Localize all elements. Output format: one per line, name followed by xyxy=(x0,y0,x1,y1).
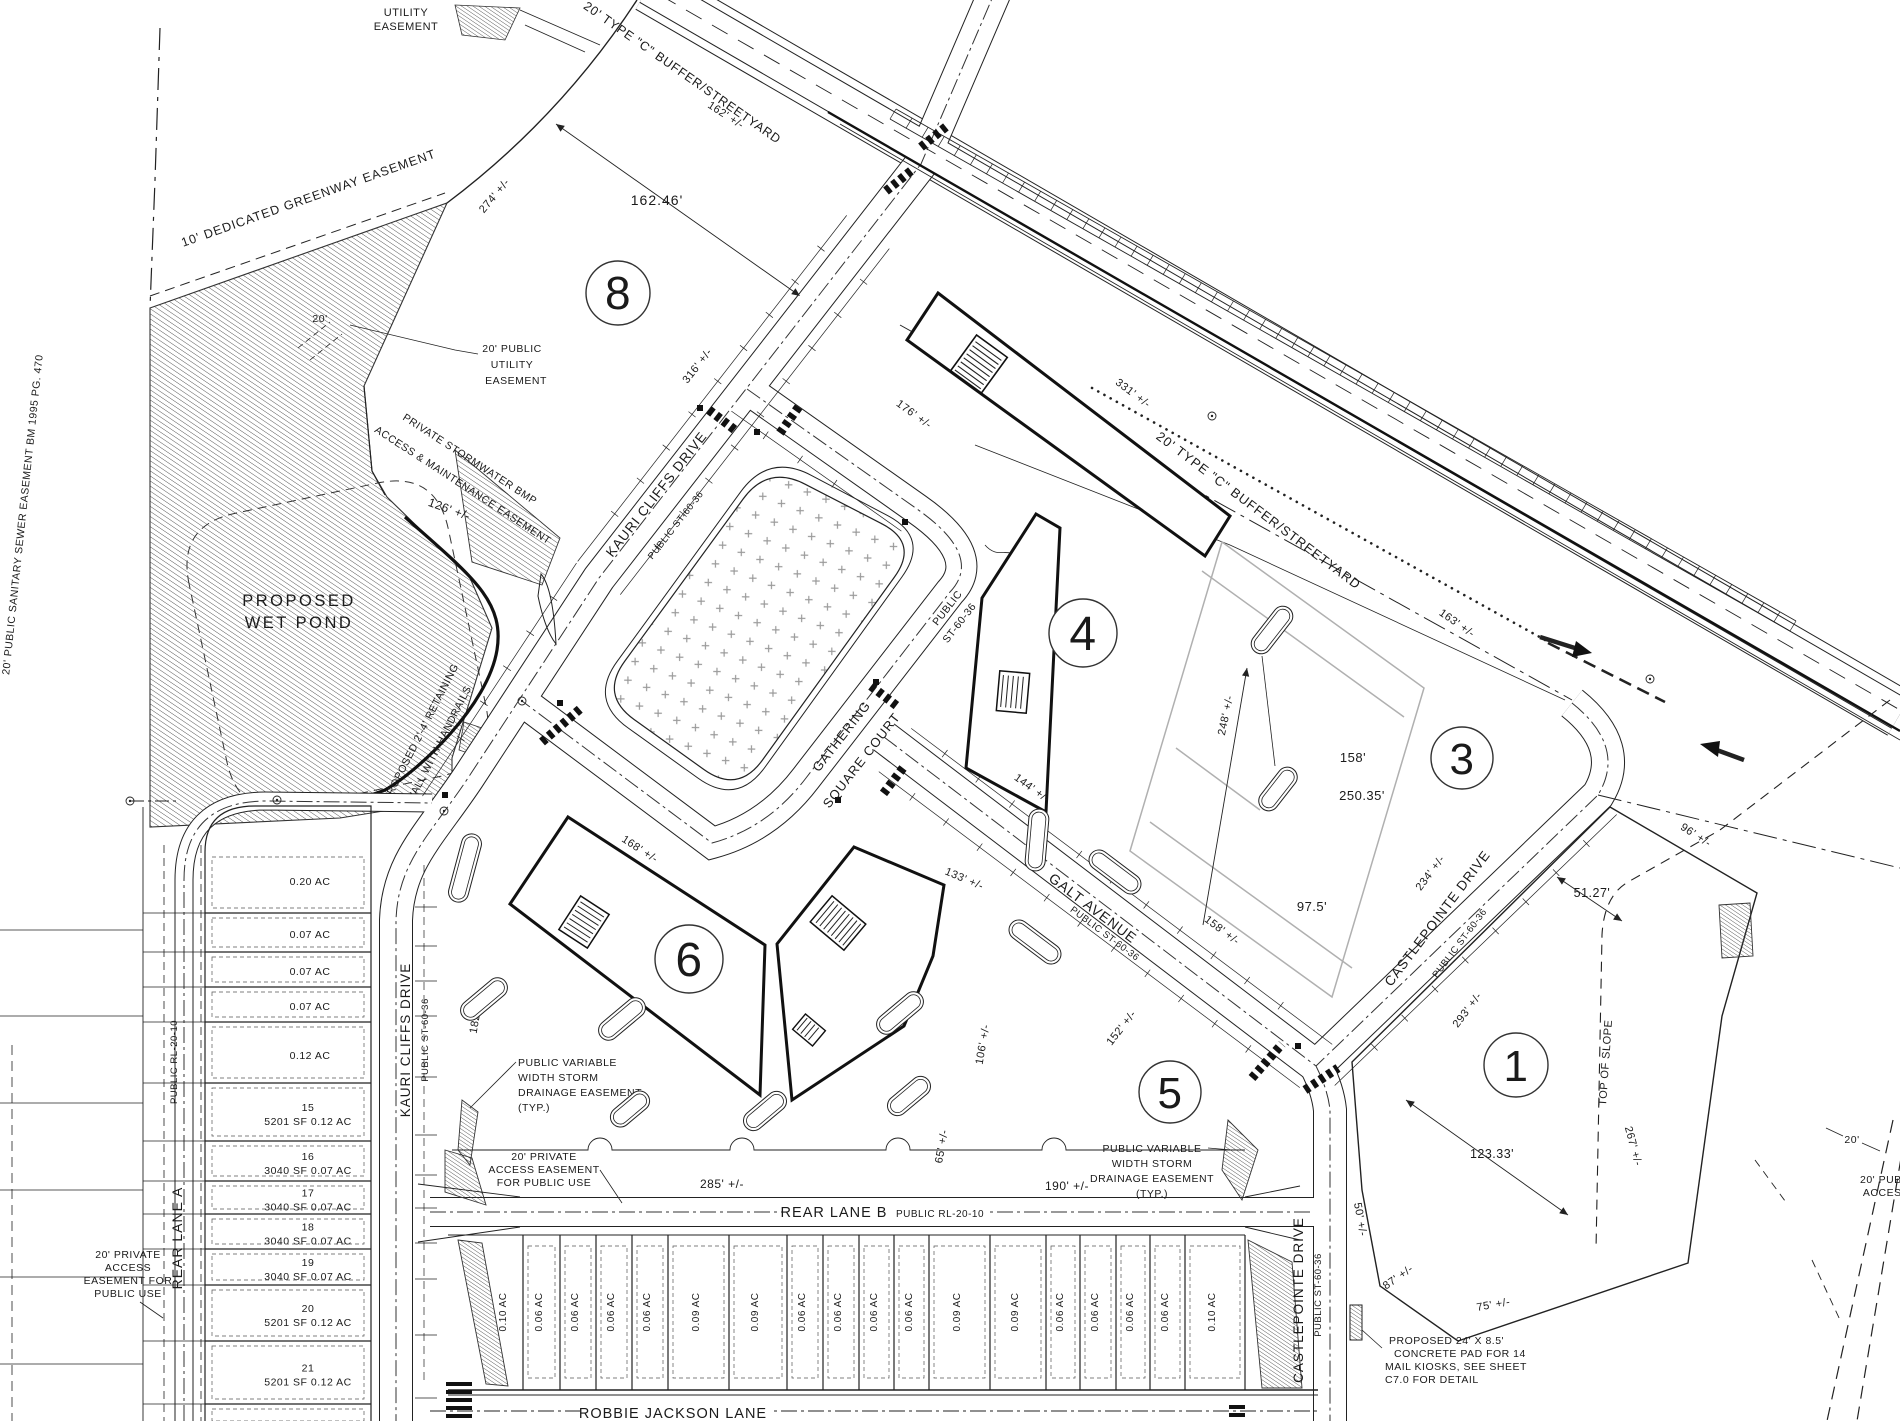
svg-text:3040 SF 0.07 AC: 3040 SF 0.07 AC xyxy=(264,1236,351,1248)
svg-text:158': 158' xyxy=(1340,750,1366,765)
svg-text:15: 15 xyxy=(302,1102,315,1114)
svg-text:PUBLIC RL-20-10: PUBLIC RL-20-10 xyxy=(896,1209,984,1220)
svg-text:285' +/-: 285' +/- xyxy=(700,1177,744,1191)
svg-text:20' PRIVATE: 20' PRIVATE xyxy=(95,1249,160,1261)
svg-text:0.06 AC: 0.06 AC xyxy=(642,1292,653,1331)
svg-text:0.06 AC: 0.06 AC xyxy=(797,1292,808,1331)
svg-text:PUBLIC VARIABLE: PUBLIC VARIABLE xyxy=(1103,1143,1202,1155)
svg-text:97.5': 97.5' xyxy=(1297,899,1327,914)
svg-text:ACCESS: ACCESS xyxy=(105,1262,151,1274)
svg-text:0.09 AC: 0.09 AC xyxy=(952,1292,963,1331)
svg-text:123.33': 123.33' xyxy=(1470,1147,1514,1161)
svg-text:3: 3 xyxy=(1450,735,1475,784)
svg-text:PUBLIC ST-60-36: PUBLIC ST-60-36 xyxy=(1313,1253,1324,1337)
svg-text:0.09 AC: 0.09 AC xyxy=(750,1292,761,1331)
svg-text:0.06 AC: 0.06 AC xyxy=(1090,1292,1101,1331)
svg-text:0.06 AC: 0.06 AC xyxy=(534,1292,545,1331)
svg-text:5201 SF 0.12 AC: 5201 SF 0.12 AC xyxy=(264,1116,351,1128)
svg-text:16: 16 xyxy=(302,1151,315,1163)
svg-text:3040 SF 0.07 AC: 3040 SF 0.07 AC xyxy=(264,1165,351,1177)
svg-text:KAURI CLIFFS DRIVE: KAURI CLIFFS DRIVE xyxy=(398,963,413,1118)
svg-text:162.46': 162.46' xyxy=(631,192,684,208)
svg-text:UTILITY: UTILITY xyxy=(491,359,534,371)
svg-text:8: 8 xyxy=(605,267,631,319)
svg-text:21: 21 xyxy=(302,1363,315,1375)
svg-text:1: 1 xyxy=(1504,1042,1529,1091)
svg-text:MAIL KIOSKS, SEE SHEET: MAIL KIOSKS, SEE SHEET xyxy=(1385,1361,1527,1373)
svg-text:PUBLIC VARIABLE: PUBLIC VARIABLE xyxy=(518,1057,617,1069)
svg-text:20: 20 xyxy=(302,1303,315,1315)
svg-text:4: 4 xyxy=(1069,608,1096,661)
svg-text:0.09 AC: 0.09 AC xyxy=(691,1292,702,1331)
svg-text:PROPOSED 24' X 8.5': PROPOSED 24' X 8.5' xyxy=(1389,1335,1504,1347)
svg-text:19: 19 xyxy=(302,1257,315,1269)
svg-text:WET POND: WET POND xyxy=(245,614,354,632)
svg-text:0.09 AC: 0.09 AC xyxy=(1010,1292,1021,1331)
svg-text:20' PUBLIC: 20' PUBLIC xyxy=(482,343,542,355)
svg-text:ACCESS: ACCESS xyxy=(1863,1187,1900,1199)
svg-text:5: 5 xyxy=(1158,1069,1183,1118)
svg-text:UTILITY: UTILITY xyxy=(384,7,429,19)
svg-text:EASEMENT: EASEMENT xyxy=(374,21,439,33)
svg-text:0.06 AC: 0.06 AC xyxy=(1125,1292,1136,1331)
svg-text:0.10 AC: 0.10 AC xyxy=(498,1292,509,1331)
svg-text:0.07 AC: 0.07 AC xyxy=(290,966,331,978)
svg-text:20': 20' xyxy=(312,313,327,325)
svg-text:(TYP.): (TYP.) xyxy=(1136,1188,1168,1200)
svg-text:0.06 AC: 0.06 AC xyxy=(606,1292,617,1331)
svg-text:5201 SF 0.12 AC: 5201 SF 0.12 AC xyxy=(264,1317,351,1329)
svg-text:17: 17 xyxy=(302,1188,315,1200)
svg-text:250.35': 250.35' xyxy=(1339,788,1385,803)
svg-text:ROBBIE JACKSON LANE: ROBBIE JACKSON LANE xyxy=(579,1406,767,1421)
svg-text:0.06 AC: 0.06 AC xyxy=(1055,1292,1066,1331)
svg-text:PUBLIC RL-20-10: PUBLIC RL-20-10 xyxy=(169,1020,180,1104)
svg-text:REAR LANE A: REAR LANE A xyxy=(169,1187,185,1290)
svg-text:0.07 AC: 0.07 AC xyxy=(290,1001,331,1013)
svg-text:0.06 AC: 0.06 AC xyxy=(833,1292,844,1331)
svg-text:20' PUBL: 20' PUBL xyxy=(1860,1174,1900,1186)
svg-text:0.12 AC: 0.12 AC xyxy=(290,1050,331,1062)
svg-text:WIDTH STORM: WIDTH STORM xyxy=(1112,1158,1193,1170)
svg-text:0.06 AC: 0.06 AC xyxy=(869,1292,880,1331)
svg-text:PUBLIC ST-60-36: PUBLIC ST-60-36 xyxy=(420,998,431,1082)
svg-text:FOR PUBLIC USE: FOR PUBLIC USE xyxy=(497,1177,592,1189)
svg-text:PROPOSED: PROPOSED xyxy=(242,592,356,610)
svg-text:0.07 AC: 0.07 AC xyxy=(290,929,331,941)
svg-text:0.06 AC: 0.06 AC xyxy=(904,1292,915,1331)
svg-text:(TYP.): (TYP.) xyxy=(518,1102,550,1114)
svg-text:20': 20' xyxy=(1844,1134,1859,1146)
svg-text:ACCESS EASEMENT: ACCESS EASEMENT xyxy=(488,1164,599,1176)
svg-text:DRAINAGE EASEMENT: DRAINAGE EASEMENT xyxy=(1090,1173,1214,1185)
svg-text:PUBLIC USE: PUBLIC USE xyxy=(94,1288,161,1300)
svg-text:C7.0 FOR DETAIL: C7.0 FOR DETAIL xyxy=(1385,1374,1479,1386)
svg-text:EASEMENT: EASEMENT xyxy=(485,375,547,387)
svg-text:0.10 AC: 0.10 AC xyxy=(1207,1292,1218,1331)
svg-text:20' PRIVATE: 20' PRIVATE xyxy=(511,1151,576,1163)
svg-text:3040 SF 0.07 AC: 3040 SF 0.07 AC xyxy=(264,1271,351,1283)
svg-text:DRAINAGE EASEMENT: DRAINAGE EASEMENT xyxy=(518,1087,642,1099)
svg-text:CONCRETE PAD FOR 14: CONCRETE PAD FOR 14 xyxy=(1394,1348,1526,1360)
svg-text:0.06 AC: 0.06 AC xyxy=(570,1292,581,1331)
svg-text:6: 6 xyxy=(675,934,702,987)
svg-text:3040 SF 0.07 AC: 3040 SF 0.07 AC xyxy=(264,1202,351,1214)
svg-text:0.06 AC: 0.06 AC xyxy=(1160,1292,1171,1331)
svg-text:51.27': 51.27' xyxy=(1574,886,1611,900)
svg-text:CASTLEPOINTE DRIVE: CASTLEPOINTE DRIVE xyxy=(1291,1217,1306,1383)
svg-text:190' +/-: 190' +/- xyxy=(1045,1179,1089,1193)
svg-text:5201 SF 0.12 AC: 5201 SF 0.12 AC xyxy=(264,1377,351,1389)
svg-text:18: 18 xyxy=(302,1222,315,1234)
svg-text:0.20 AC: 0.20 AC xyxy=(290,876,331,888)
svg-text:WIDTH STORM: WIDTH STORM xyxy=(518,1072,599,1084)
svg-text:REAR LANE B: REAR LANE B xyxy=(781,1205,888,1221)
